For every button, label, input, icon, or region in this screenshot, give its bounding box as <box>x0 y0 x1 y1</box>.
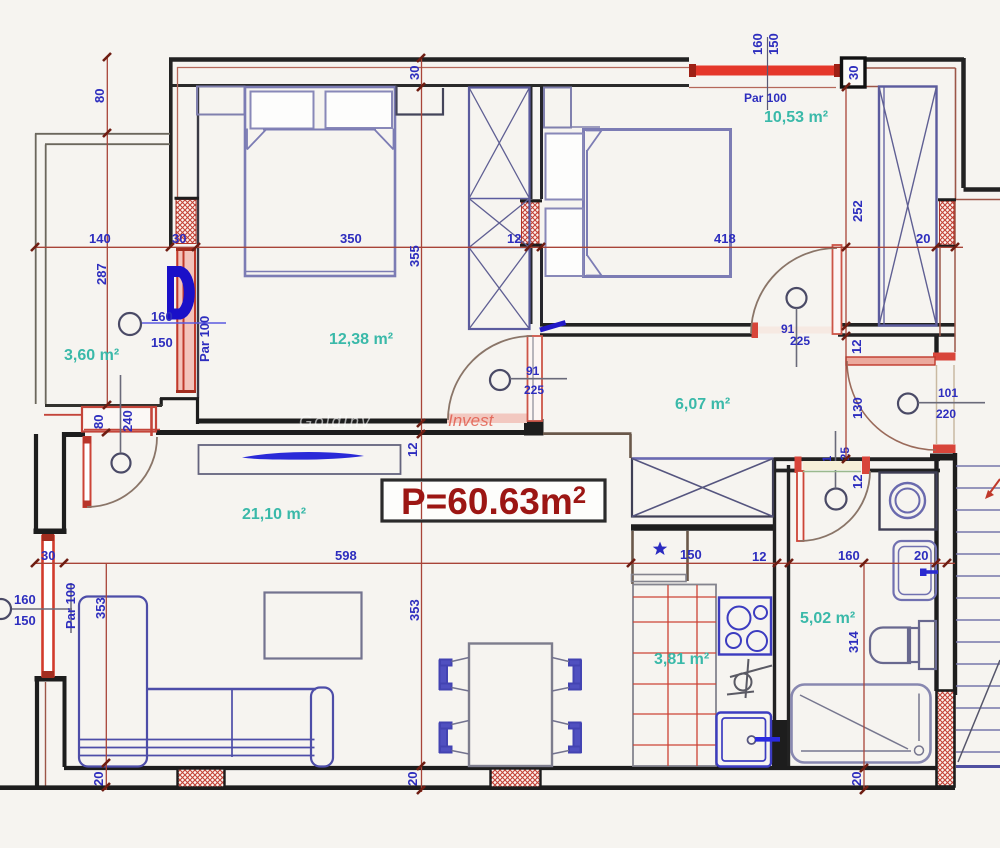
svg-text:12: 12 <box>752 549 766 564</box>
svg-text:30: 30 <box>41 548 55 563</box>
svg-text:Par 100: Par 100 <box>197 316 212 362</box>
svg-text:30: 30 <box>846 66 861 80</box>
svg-text:12: 12 <box>850 475 865 489</box>
svg-text:30: 30 <box>407 66 422 80</box>
svg-text:240: 240 <box>120 410 135 432</box>
svg-text:150: 150 <box>14 613 36 628</box>
svg-text:150: 150 <box>766 33 781 55</box>
svg-text:3,81 m²: 3,81 m² <box>654 651 709 668</box>
svg-text:598: 598 <box>335 548 357 563</box>
svg-text:160: 160 <box>838 548 860 563</box>
svg-text:353: 353 <box>407 599 422 621</box>
svg-text:12,38 m²: 12,38 m² <box>329 331 393 348</box>
svg-text:Par 100: Par 100 <box>744 91 787 105</box>
svg-text:140: 140 <box>89 231 111 246</box>
svg-text:225: 225 <box>524 383 544 397</box>
svg-text:12: 12 <box>405 443 420 457</box>
svg-text:220: 220 <box>936 407 956 421</box>
svg-text:160: 160 <box>14 592 36 607</box>
svg-text:Invest: Invest <box>448 411 495 430</box>
svg-text:GoldInv: GoldInv <box>299 412 372 431</box>
svg-text:160: 160 <box>151 309 173 324</box>
svg-text:3,60 m²: 3,60 m² <box>64 347 119 364</box>
svg-text:160: 160 <box>750 33 765 55</box>
svg-text:12: 12 <box>849 340 864 354</box>
svg-text:20: 20 <box>914 548 928 563</box>
svg-text:252: 252 <box>850 200 865 222</box>
svg-text:20: 20 <box>849 772 864 786</box>
svg-text:353: 353 <box>93 597 108 619</box>
svg-text:418: 418 <box>714 231 736 246</box>
svg-text:91: 91 <box>526 364 540 378</box>
svg-text:355: 355 <box>407 245 422 267</box>
svg-text:150: 150 <box>151 335 173 350</box>
svg-text:30: 30 <box>172 231 186 246</box>
svg-text:80: 80 <box>92 89 107 103</box>
svg-text:287: 287 <box>94 263 109 285</box>
svg-text:12: 12 <box>507 231 521 246</box>
svg-text:10,53 m²: 10,53 m² <box>764 109 828 126</box>
svg-text:225: 225 <box>790 334 810 348</box>
svg-text:Par 100: Par 100 <box>63 583 78 629</box>
svg-text:130: 130 <box>850 397 865 419</box>
svg-text:20: 20 <box>91 772 106 786</box>
svg-text:150: 150 <box>680 547 702 562</box>
svg-text:101: 101 <box>938 386 958 400</box>
svg-text:80: 80 <box>91 415 106 429</box>
svg-text:20: 20 <box>405 772 420 786</box>
svg-text:21,10 m²: 21,10 m² <box>242 506 306 523</box>
svg-text:5,02 m²: 5,02 m² <box>800 610 855 627</box>
svg-text:P=60.63m2: P=60.63m2 <box>401 481 586 522</box>
svg-text:314: 314 <box>846 631 861 653</box>
svg-text:350: 350 <box>340 231 362 246</box>
svg-text:6,07 m²: 6,07 m² <box>675 396 730 413</box>
svg-text:20: 20 <box>916 231 930 246</box>
